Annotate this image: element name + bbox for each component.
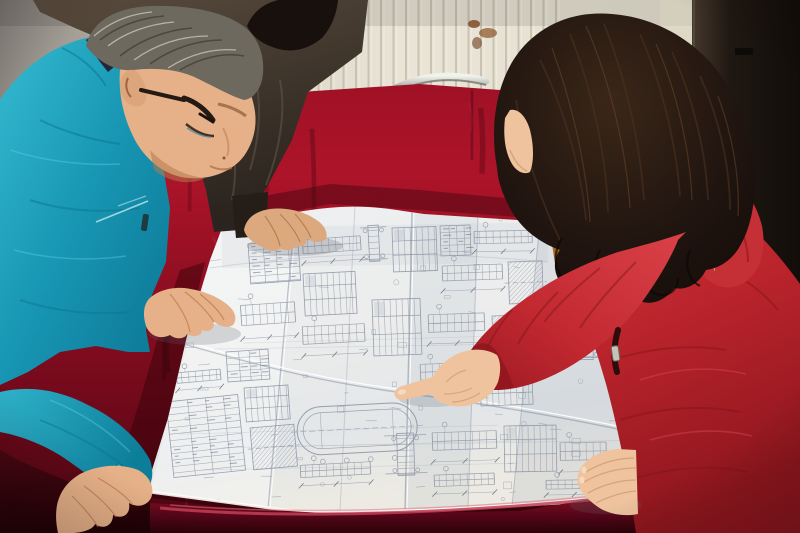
vignette (0, 0, 800, 533)
scene-svg: Photograph: three people lean over a lar… (0, 0, 800, 533)
photo-blueprint-meeting: Photograph: three people lean over a lar… (0, 0, 800, 533)
